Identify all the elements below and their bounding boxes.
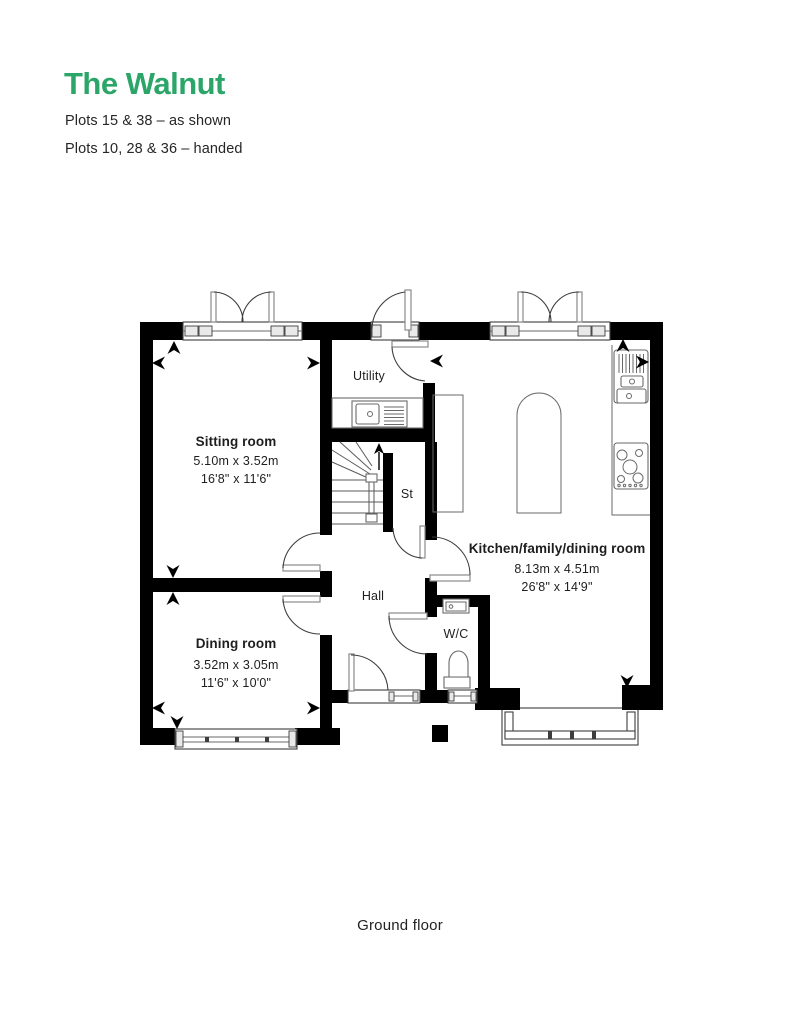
hall-label: Hall [362,589,384,603]
kitchen-island [517,393,561,513]
dining-room-name: Dining room [196,636,277,651]
wc-basin-icon [443,599,469,613]
sitting-room-metric: 5.10m x 3.52m [193,454,278,468]
kitchen-counter-left [433,395,463,512]
dining-room-door [283,596,320,634]
utility-internal-door [392,341,428,381]
utility-external-door [371,290,419,340]
staircase [332,442,384,524]
kitchen-name: Kitchen/family/dining room [469,541,646,556]
sitting-room-name: Sitting room [196,434,277,449]
dining-room-metric: 3.52m x 3.05m [193,658,278,672]
dining-room-imperial: 11'6" x 10'0" [201,676,271,690]
kitchen-imperial: 26'8" x 14'9" [521,580,592,594]
utility-label: Utility [353,369,386,383]
kitchen-metric: 8.13m x 4.51m [514,562,599,576]
kitchen-hob-icon [614,443,648,489]
stairs-up-arrow-icon [374,443,384,470]
sitting-room-imperial: 16'8" x 11'6" [201,472,271,486]
porch-post [432,725,448,742]
dining-window [175,729,297,749]
sitting-room-door [283,533,320,571]
sitting-french-doors-window [183,292,302,340]
floor-plan: Sitting room 5.10m x 3.52m 16'8" x 11'6"… [0,0,800,1036]
kitchen-bay-window [502,708,638,745]
kitchen-french-doors-window [490,292,610,340]
utility-sink-icon [332,398,423,428]
wc-toilet-icon [444,651,470,688]
store-door [393,526,425,558]
wc-door [389,613,427,654]
kitchen-door [430,537,470,581]
front-door-and-sidelight [348,654,420,703]
store-label: St [401,487,414,501]
wc-label: W/C [444,627,469,641]
kitchen-sink-icon [614,350,648,403]
wc-window [448,690,477,703]
floor-caption: Ground floor [0,917,800,934]
